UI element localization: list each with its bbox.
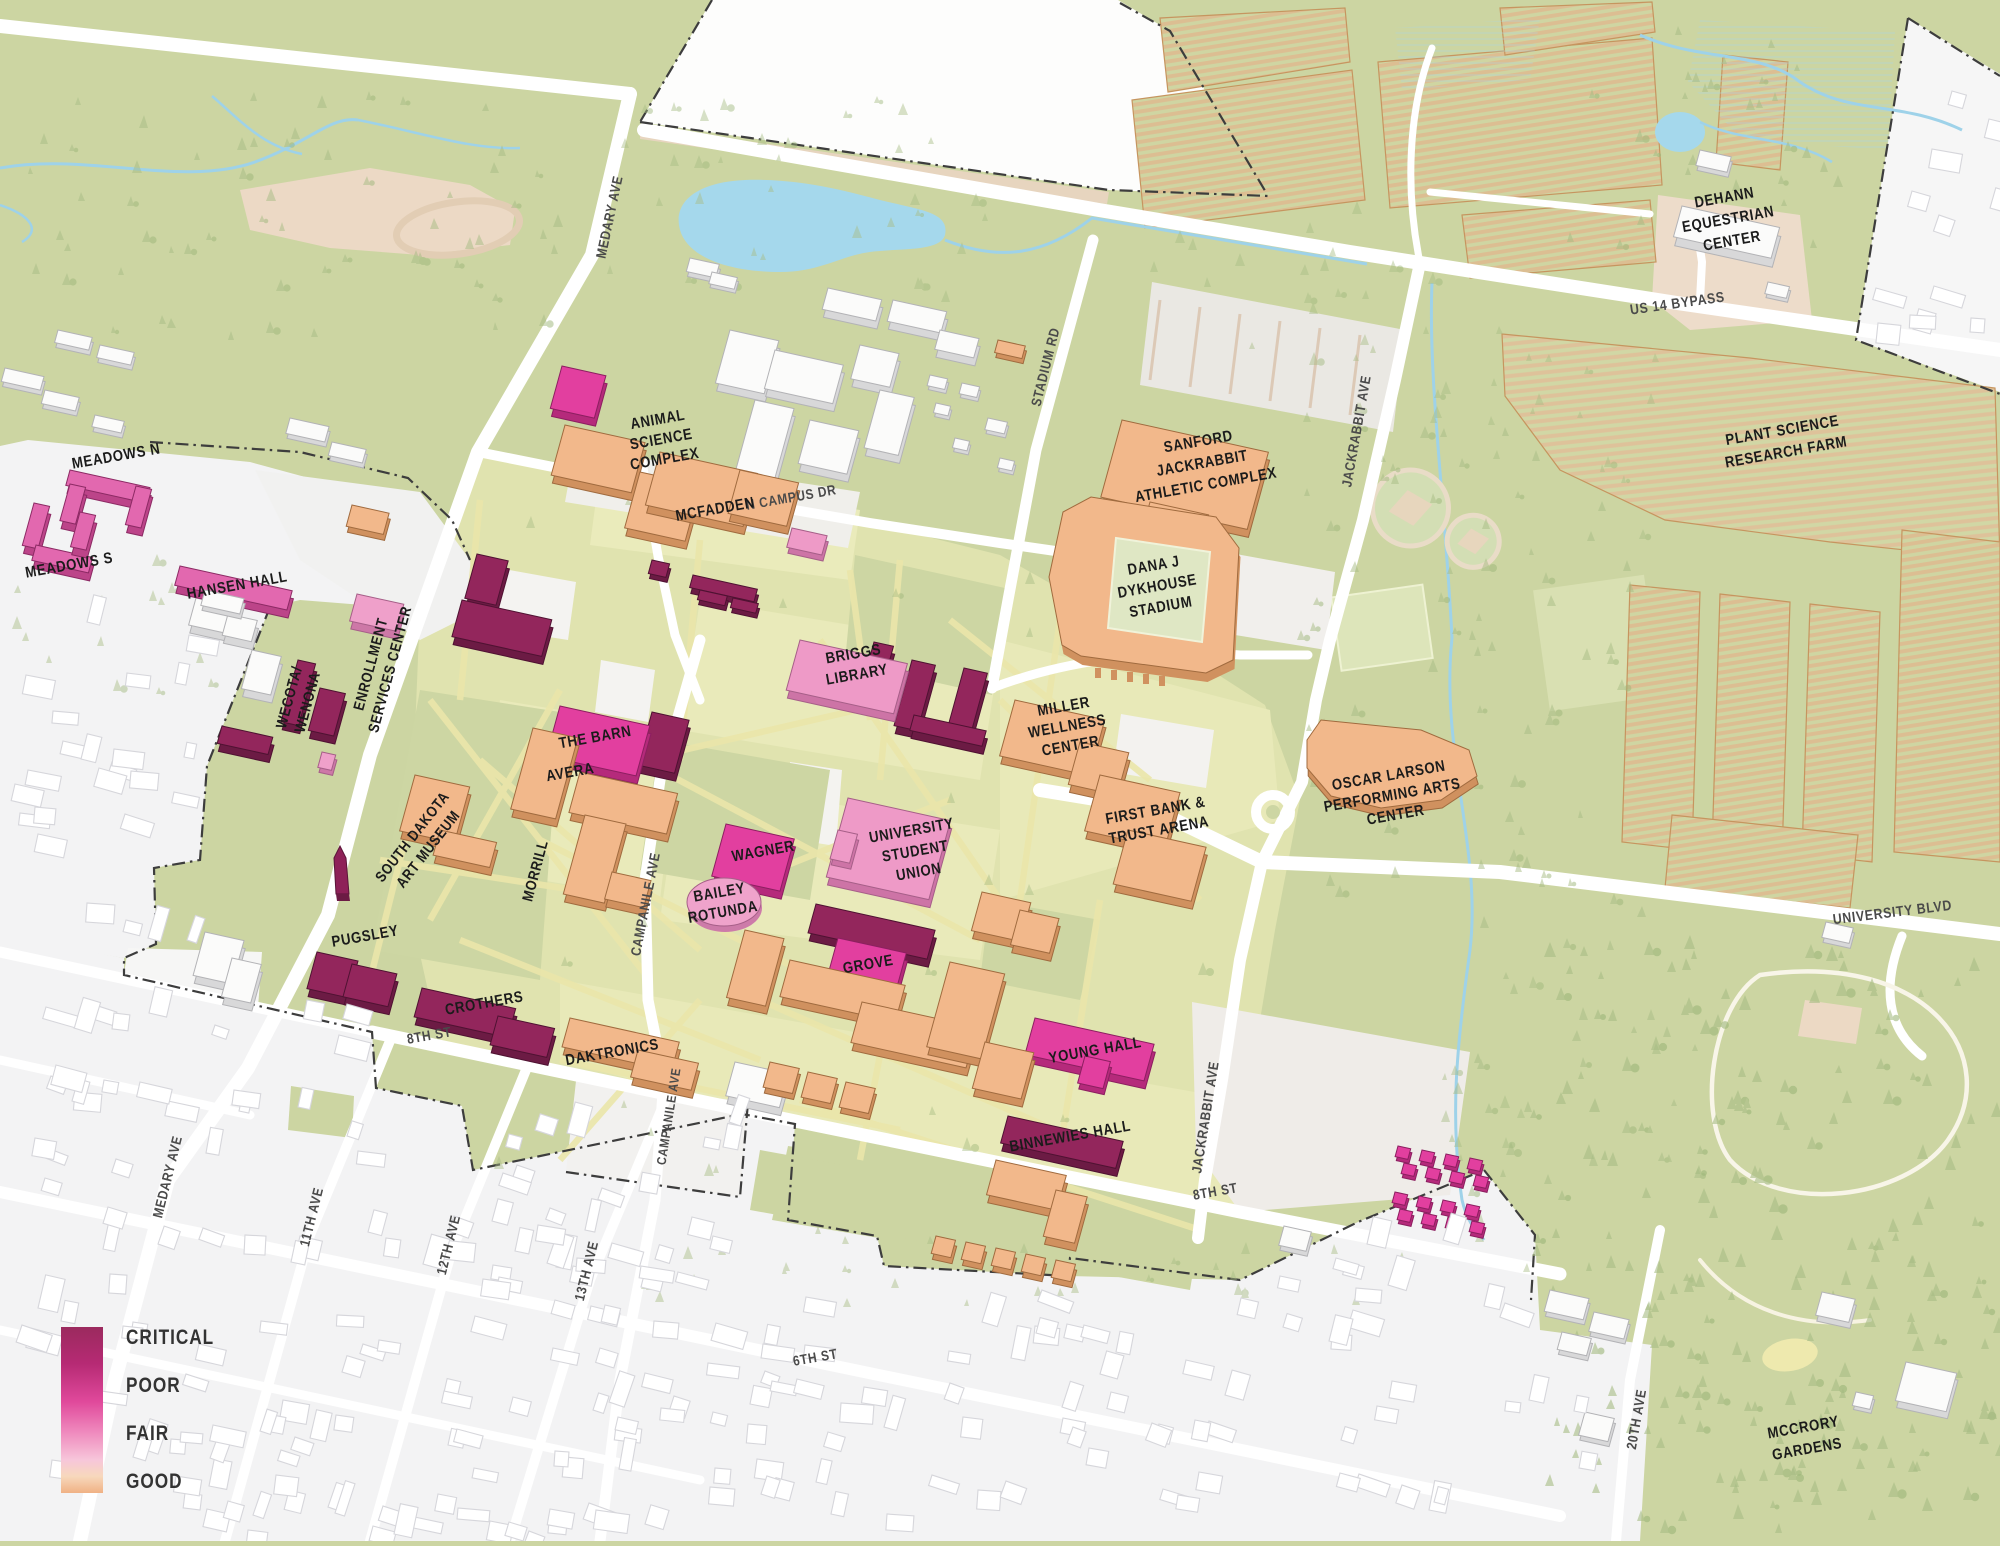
svg-text:CRITICAL: CRITICAL [126,1327,214,1350]
svg-text:POOR: POOR [126,1375,181,1398]
svg-text:FAIR: FAIR [126,1423,169,1446]
svg-text:GOOD: GOOD [126,1471,183,1494]
